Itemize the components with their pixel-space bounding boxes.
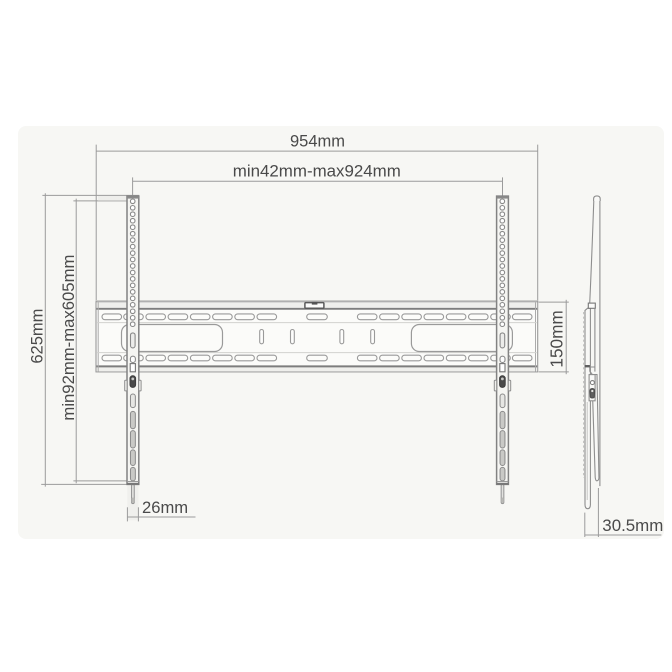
svg-text:26mm: 26mm bbox=[142, 498, 188, 517]
svg-text:625mm: 625mm bbox=[29, 309, 47, 364]
svg-text:954mm: 954mm bbox=[290, 133, 345, 151]
svg-text:min42mm-max924mm: min42mm-max924mm bbox=[233, 162, 401, 181]
svg-text:30.5mm: 30.5mm bbox=[602, 516, 663, 535]
svg-text:min92mm-max605mm: min92mm-max605mm bbox=[59, 255, 78, 421]
svg-text:150mm: 150mm bbox=[547, 310, 567, 367]
